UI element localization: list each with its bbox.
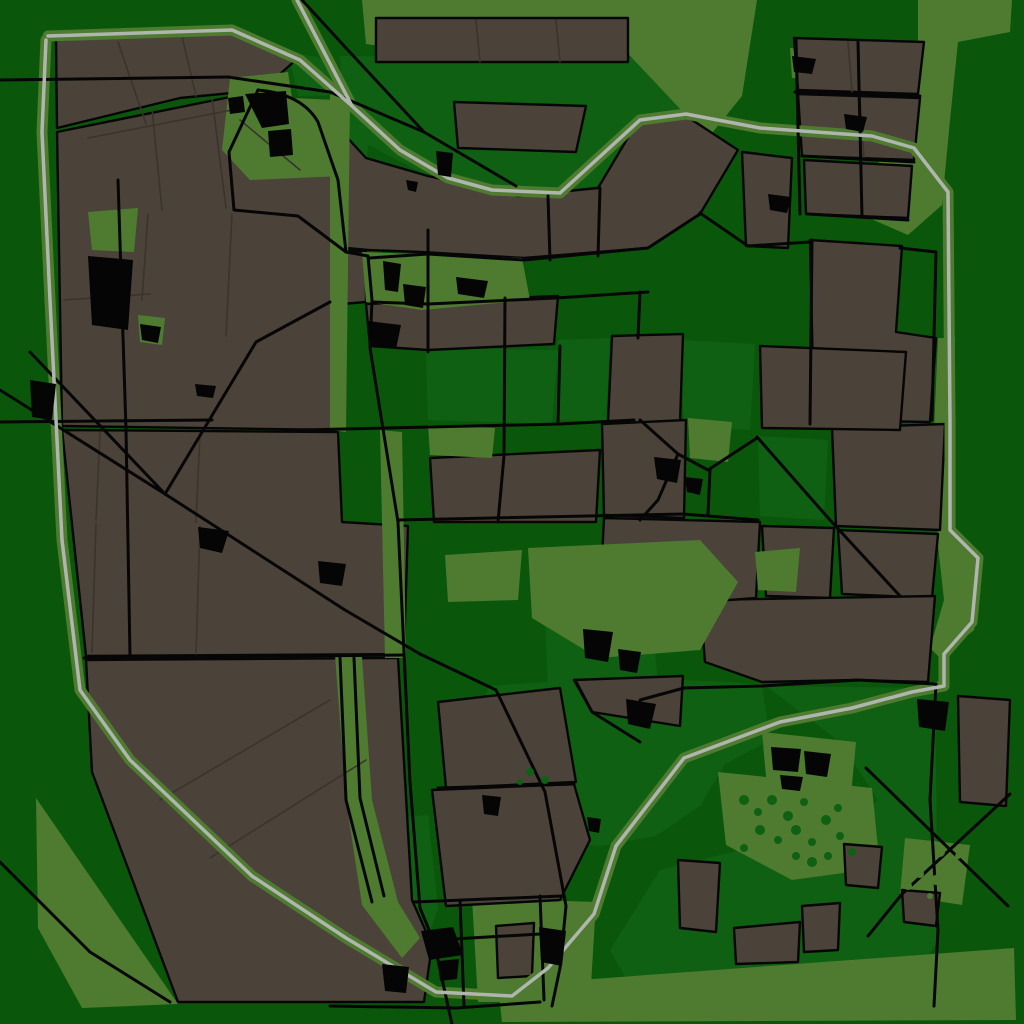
buildings-shape [436, 151, 453, 177]
tree-dot [774, 836, 782, 844]
buildings-shape [654, 457, 681, 483]
forest-patches-shape [680, 340, 755, 430]
buildings-shape [438, 959, 459, 981]
fields-shape [802, 903, 840, 952]
tree-dot [907, 843, 917, 853]
tree-dot [821, 815, 831, 825]
tree-dot [916, 870, 924, 878]
tree-dot [526, 768, 534, 776]
tree-dot [836, 832, 844, 840]
fields-shape [430, 450, 600, 522]
tree-dot [808, 838, 816, 846]
tree-dot [807, 857, 817, 867]
map-canvas [0, 0, 1024, 1024]
tree-dot [946, 864, 954, 872]
fields-shape [902, 890, 940, 926]
tree-dot [755, 825, 765, 835]
tree-dot [517, 779, 523, 785]
black-roads-segment [708, 470, 710, 514]
tree-dot [942, 890, 950, 898]
fields-shape [432, 784, 590, 906]
buildings-shape [587, 817, 601, 833]
black-roads-segment [558, 346, 560, 422]
fields-shape [454, 102, 586, 152]
tree-dot [740, 844, 748, 852]
tree-dot [824, 852, 832, 860]
buildings-shape [382, 964, 409, 993]
fields-shape [832, 424, 945, 530]
meadows-over-shape [445, 550, 522, 602]
meadows-over-shape [88, 208, 138, 252]
buildings-shape [539, 927, 566, 966]
fields-shape [804, 160, 912, 218]
tree-dot [955, 853, 961, 859]
tree-dot [541, 776, 549, 784]
fields-shape [376, 18, 628, 62]
tree-dot [739, 795, 749, 805]
buildings-shape [318, 561, 346, 586]
fields-shape [700, 596, 935, 682]
tree-dot [783, 811, 793, 821]
buildings-shape [228, 96, 245, 114]
buildings-shape [482, 795, 501, 816]
buildings-shape [268, 129, 293, 157]
tree-dot [922, 856, 930, 864]
fields-shape [734, 922, 800, 964]
black-roads-segment [598, 188, 600, 256]
fields-shape [678, 860, 720, 932]
fields-shape [496, 923, 534, 978]
tree-dot [792, 852, 800, 860]
buildings-shape [792, 56, 816, 74]
black-roads-segment [638, 292, 640, 338]
fields-shape [438, 688, 576, 788]
buildings-shape [403, 284, 426, 308]
buildings-shape [804, 751, 831, 777]
fields-shape [760, 346, 906, 430]
fields-shape [608, 334, 683, 424]
fields-shape [838, 530, 938, 598]
tree-dot [848, 848, 856, 856]
buildings-shape [195, 384, 216, 398]
overview-map [0, 0, 1024, 1024]
buildings-shape [383, 261, 401, 292]
forest-patches-shape [426, 348, 558, 424]
buildings-shape [30, 380, 56, 420]
buildings-shape [771, 747, 801, 772]
tree-dot [904, 882, 912, 890]
meadows-over-shape [428, 425, 495, 458]
tree-dot [791, 825, 801, 835]
black-roads-segment [548, 196, 550, 260]
meadows-over-shape [688, 418, 732, 462]
tree-dot [834, 804, 842, 812]
fields-shape [958, 696, 1010, 806]
black-roads-segment [0, 420, 212, 422]
buildings-shape [780, 775, 803, 791]
buildings-shape [88, 256, 133, 330]
tree-dot [754, 808, 762, 816]
buildings-shape [140, 324, 161, 343]
buildings-shape [368, 321, 401, 349]
tree-dot [935, 847, 945, 857]
buildings-shape [768, 194, 791, 213]
tree-dot [800, 798, 808, 806]
forest-patches-shape [556, 338, 610, 422]
meadows-over-shape [755, 548, 800, 592]
buildings-shape [618, 649, 641, 673]
tree-dot [931, 875, 941, 885]
tree-dot [767, 795, 777, 805]
buildings-shape [583, 629, 613, 662]
black-roads-segment [810, 240, 812, 424]
tree-dot [927, 893, 933, 899]
buildings-shape [917, 699, 949, 731]
